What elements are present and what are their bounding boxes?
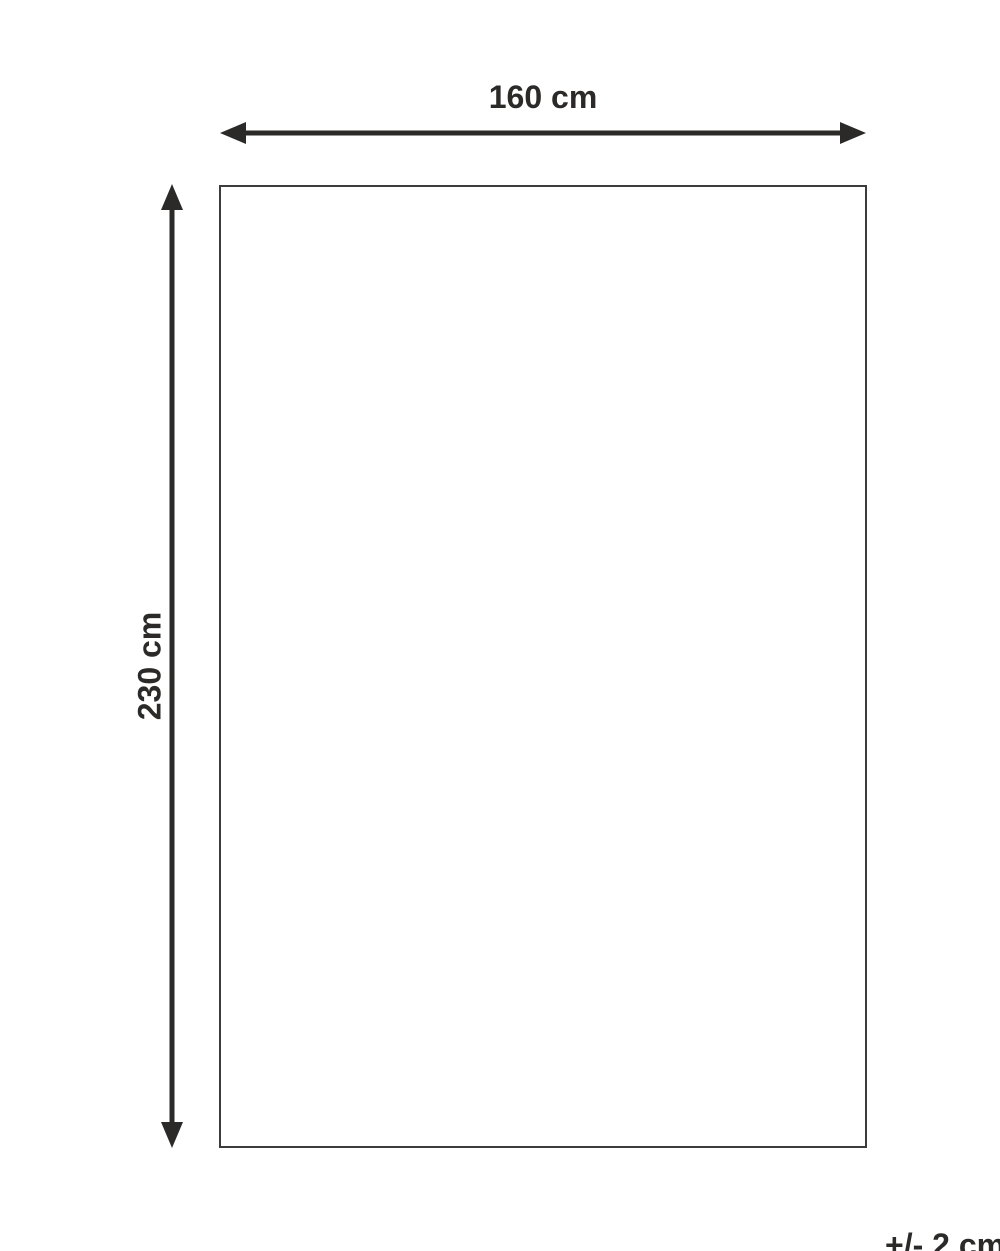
- tolerance-label: +/- 2 cm: [885, 1227, 1000, 1251]
- width-dimension-arrow-icon: [218, 119, 868, 147]
- width-dimension-label: 160 cm: [219, 79, 867, 116]
- dimension-diagram: 160 cm 230 cm +/- 2 cm: [0, 0, 1000, 1251]
- height-dimension-arrow-icon: [158, 182, 186, 1150]
- product-outline: [219, 185, 867, 1148]
